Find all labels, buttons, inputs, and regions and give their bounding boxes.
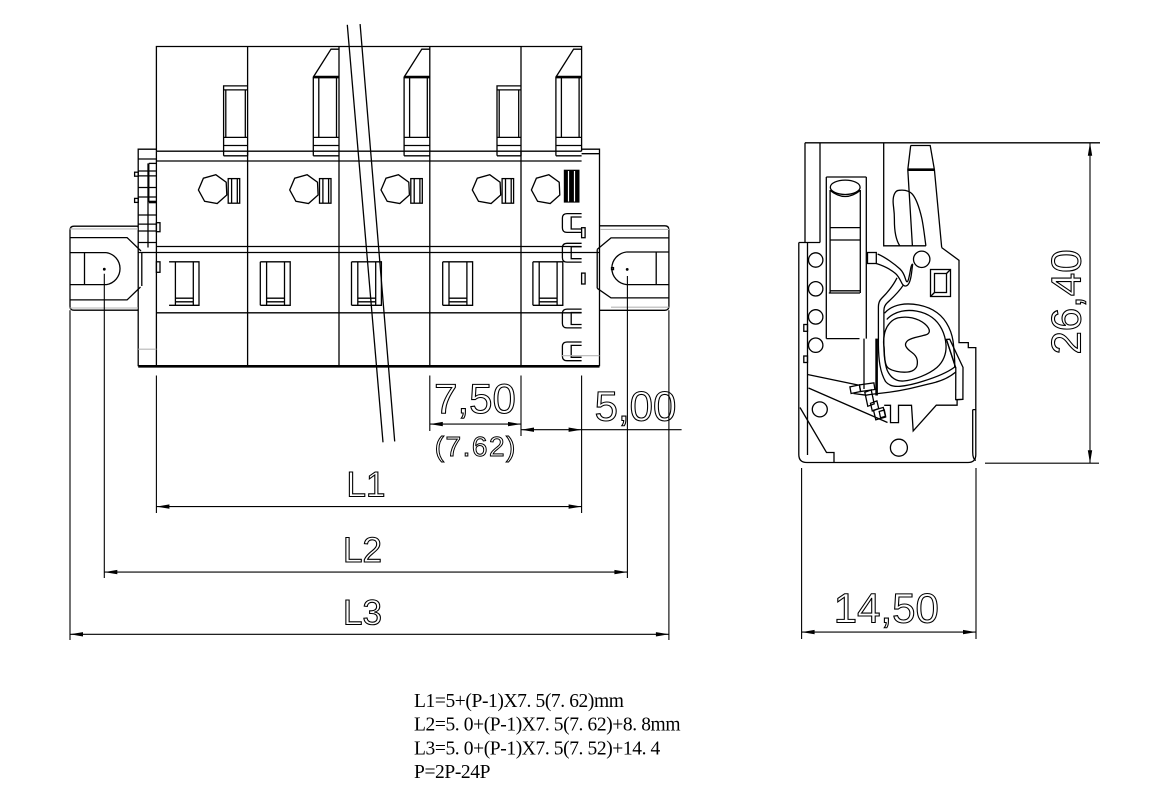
svg-text:L1: L1 [347, 466, 386, 505]
svg-text:L3=5. 0+(P-1)X7. 5(7. 52)+14.: L3=5. 0+(P-1)X7. 5(7. 52)+14. 4 [414, 738, 661, 759]
svg-text:L3: L3 [343, 594, 382, 633]
svg-text:26,40: 26,40 [1043, 249, 1090, 354]
svg-text:L2: L2 [343, 531, 382, 570]
svg-text:5,00: 5,00 [595, 383, 677, 430]
svg-text:(7.62): (7.62) [435, 431, 517, 462]
svg-text:L1=5+(P-1)X7. 5(7. 62)mm: L1=5+(P-1)X7. 5(7. 62)mm [414, 691, 624, 712]
svg-text:P=2P-24P: P=2P-24P [414, 762, 491, 783]
svg-text:L2=5. 0+(P-1)X7. 5(7. 62)+8. 8: L2=5. 0+(P-1)X7. 5(7. 62)+8. 8mm [414, 715, 680, 736]
svg-text:14,50: 14,50 [834, 585, 939, 632]
svg-text:7,50: 7,50 [434, 375, 516, 422]
